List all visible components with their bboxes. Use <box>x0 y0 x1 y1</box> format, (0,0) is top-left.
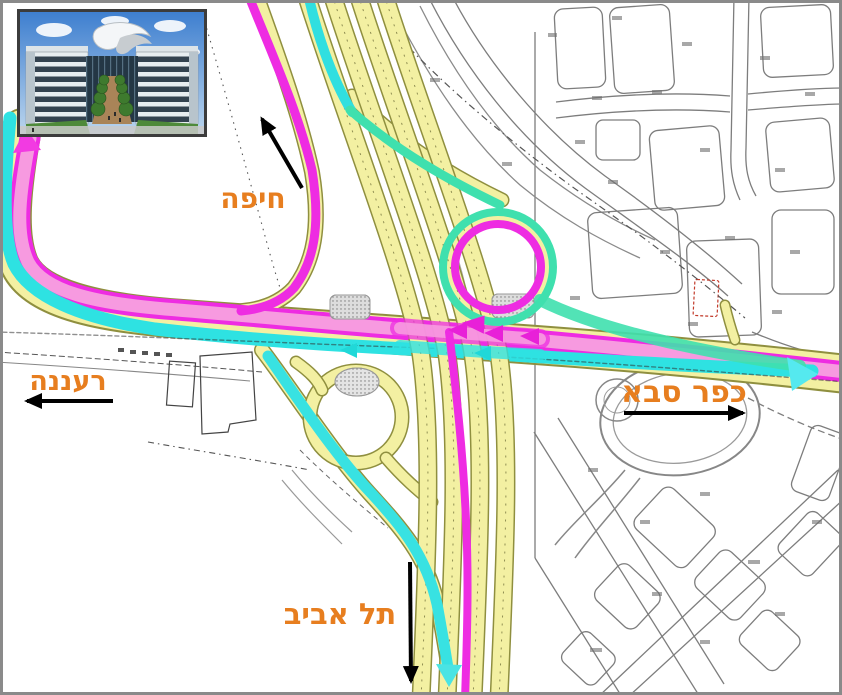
interchange-plan-screenshot: חיפה רעננה כפר סבא תל אביב <box>0 0 842 695</box>
interchange-map: חיפה רעננה כפר סבא תל אביב <box>0 0 842 695</box>
label-raanana: רעננה <box>29 366 106 397</box>
building-photo <box>19 11 206 136</box>
label-haifa: חיפה <box>220 182 285 215</box>
label-tel-aviv: תל אביב <box>284 597 396 631</box>
label-kfar-saba: כפר סבא <box>621 375 747 410</box>
arrow-tel-aviv <box>410 562 411 681</box>
